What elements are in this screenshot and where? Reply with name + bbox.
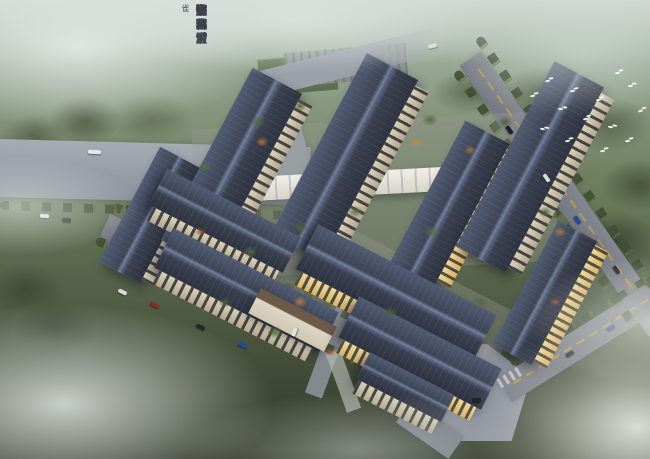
calligraphy-inscription: 朱雀 难寻。 烟雨渺 变化， 宇宙穷 为深。 怀古情 女杰， 忧时君 子心。 寄… [8, 4, 208, 132]
bird [600, 150, 605, 153]
bird [530, 95, 535, 98]
bird [628, 85, 633, 88]
bird [565, 140, 570, 143]
aerial-architectural-rendering: 朱雀 难寻。 烟雨渺 变化， 宇宙穷 为深。 怀古情 女杰， 忧时君 子心。 寄… [0, 0, 650, 459]
bird [583, 117, 588, 120]
bird [615, 72, 620, 75]
bird [545, 80, 550, 83]
calligraphy-column: 寻巷谊 [193, 4, 208, 46]
bird [608, 126, 613, 129]
bird [625, 140, 630, 143]
bird [638, 109, 643, 112]
bird [596, 99, 601, 102]
bird [570, 90, 575, 93]
bird [558, 108, 563, 111]
bird [540, 128, 545, 131]
